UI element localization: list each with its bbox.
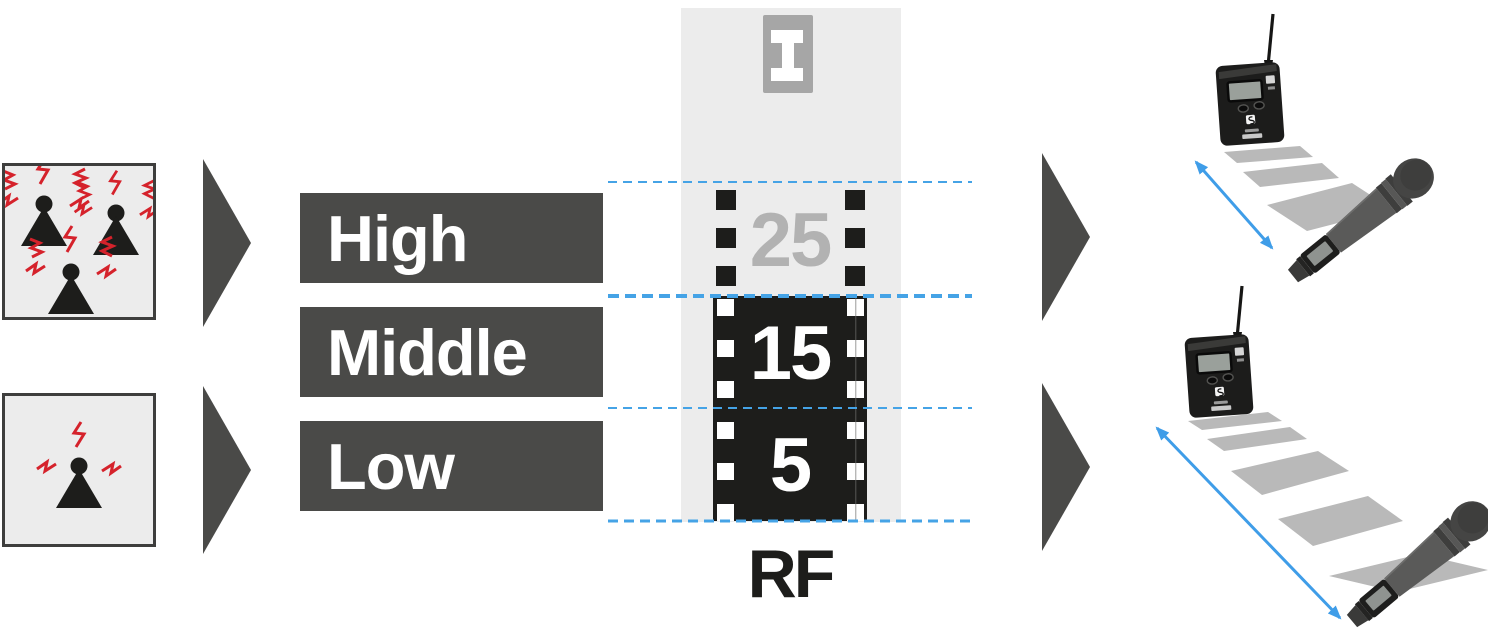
antenna-interference-low-icon — [5, 396, 153, 544]
flow-arrow-icon — [1042, 153, 1090, 321]
rf-axis-label: RF — [748, 536, 834, 612]
floor-tile — [1207, 427, 1307, 451]
level-bar-middle: Middle — [300, 307, 603, 397]
floor-tile — [1224, 146, 1313, 163]
floor-tile — [1231, 451, 1349, 495]
level-label-middle: Middle — [327, 315, 527, 390]
floor-tile — [1243, 163, 1339, 187]
floor-tiles — [1188, 412, 1488, 592]
flow-arrow-icon — [1042, 383, 1090, 551]
segment-value-15: 15 — [750, 311, 831, 396]
bodypack-transmitter-icon — [1215, 14, 1284, 146]
level-bar-low: Low — [300, 421, 603, 511]
segment-value-25: 25 — [750, 198, 831, 283]
level-label-high: High — [327, 201, 467, 276]
antenna-interference-high-icon — [5, 166, 153, 317]
interference-high-box — [2, 163, 156, 320]
range-group-short — [1185, 12, 1485, 287]
segment-value-5: 5 — [770, 423, 811, 508]
i-beam-icon — [763, 15, 813, 93]
antenna-icon — [37, 422, 121, 508]
bodypack-transmitter-icon — [1184, 286, 1253, 418]
flow-arrow-icon — [203, 386, 251, 554]
floor-tile — [1278, 496, 1403, 546]
level-bar-high: High — [300, 193, 603, 283]
interference-low-box — [2, 393, 156, 547]
rf-power-diagram: High Middle Low 25 — [0, 0, 1488, 629]
antenna-icon — [5, 166, 89, 246]
rf-meter: 25 15 5 RF — [600, 0, 980, 629]
antenna-icon — [75, 171, 153, 255]
flow-arrow-icon — [203, 159, 251, 327]
level-label-low: Low — [327, 429, 454, 504]
range-group-long — [1143, 280, 1488, 629]
